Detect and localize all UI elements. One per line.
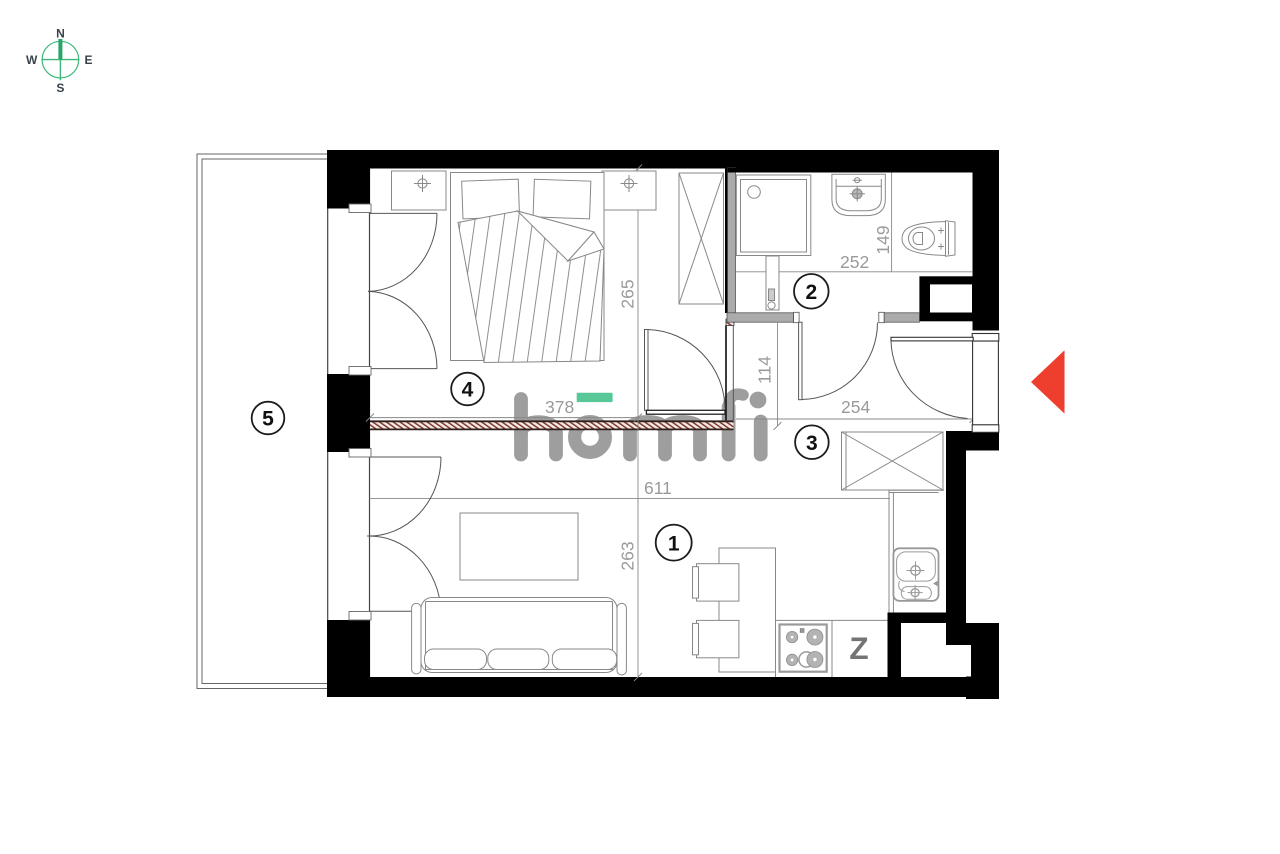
svg-text:3: 3 [806, 432, 818, 455]
svg-text:S: S [56, 81, 64, 95]
svg-text:252: 252 [840, 252, 869, 272]
svg-text:265: 265 [618, 279, 638, 308]
svg-text:W: W [26, 53, 38, 67]
svg-text:378: 378 [545, 397, 574, 417]
svg-text:149: 149 [873, 225, 893, 254]
svg-text:611: 611 [644, 478, 672, 498]
svg-text:Z: Z [849, 630, 868, 666]
svg-text:5: 5 [262, 408, 274, 431]
svg-text:E: E [84, 53, 92, 67]
svg-text:1: 1 [668, 533, 680, 556]
svg-text:2: 2 [805, 281, 817, 304]
svg-text:263: 263 [618, 541, 638, 570]
svg-text:4: 4 [462, 379, 474, 402]
svg-text:254: 254 [841, 397, 870, 417]
svg-text:N: N [56, 27, 65, 41]
svg-text:114: 114 [755, 356, 775, 384]
